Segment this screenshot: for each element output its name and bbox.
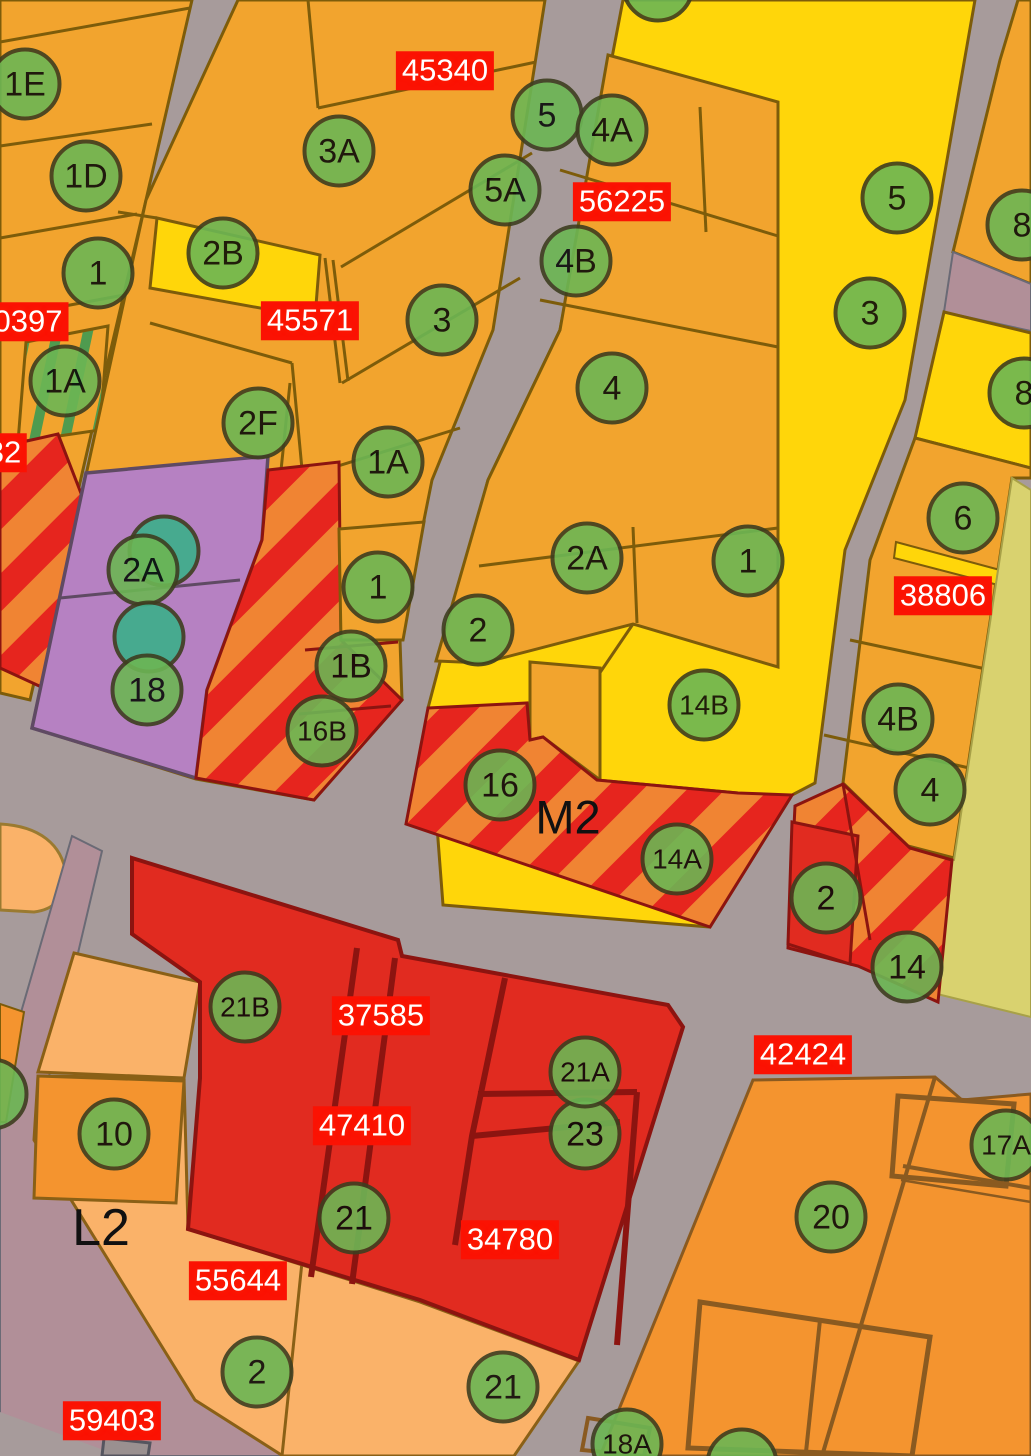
parcel-id-label: 42424 — [754, 1035, 852, 1074]
parcel-id-label: 59403 — [63, 1401, 161, 1440]
parcel-marker-label: 5 — [888, 181, 907, 215]
parcel-marker-label: 2B — [202, 236, 244, 270]
parcel-marker-label: 16 — [481, 768, 519, 802]
parcel-id-label: 55644 — [189, 1261, 287, 1300]
parcel-marker-label: 21B — [220, 993, 270, 1021]
parcel-marker[interactable]: 2A — [551, 522, 624, 595]
parcel-marker[interactable]: 21 — [318, 1182, 391, 1255]
parcel-marker[interactable]: 21A — [549, 1036, 622, 1109]
parcel-marker[interactable]: 21 — [467, 1351, 540, 1424]
parcel-marker-label: 2 — [248, 1355, 267, 1389]
parcel-marker-label: 1A — [367, 445, 409, 479]
parcel-marker[interactable]: 3 — [834, 277, 907, 350]
parcel-marker[interactable]: 2A — [107, 534, 180, 607]
parcel-marker-label: 1A — [44, 364, 86, 398]
parcel-marker-label: 23 — [566, 1117, 604, 1151]
parcel-marker[interactable]: 1D — [50, 140, 123, 213]
parcel-id-label: 45340 — [396, 51, 494, 90]
parcel-marker[interactable]: 4B — [862, 683, 935, 756]
parcel-marker[interactable]: 16 — [464, 749, 537, 822]
parcel-marker[interactable]: 4A — [576, 94, 649, 167]
parcel-id-label: 32 — [0, 433, 27, 472]
parcel-marker[interactable]: 4 — [576, 352, 649, 425]
parcel-marker[interactable]: 1A — [29, 345, 102, 418]
parcel-marker[interactable]: 6 — [927, 482, 1000, 555]
parcel-marker-label: 4B — [877, 702, 919, 736]
parcel-marker-label: 2A — [122, 553, 164, 587]
zone-label: M2 — [535, 794, 600, 841]
parcel-marker-label: 4 — [921, 773, 940, 807]
parcel-marker-label: 18A — [602, 1430, 652, 1456]
parcel-marker-label: 21 — [335, 1201, 373, 1235]
parcel-marker-label: 14A — [652, 845, 702, 873]
parcel-marker[interactable]: 1 — [62, 237, 135, 310]
parcel-marker-label: 1E — [4, 67, 46, 101]
parcel-marker[interactable]: 16B — [286, 695, 359, 768]
map-viewport[interactable]: M2L21E1D11A54A5A4B3A2B34538862F1A2A1811B… — [0, 0, 1031, 1456]
parcel-marker-label: 6 — [954, 501, 973, 535]
parcel-id-label: 45571 — [261, 301, 359, 340]
parcel-marker[interactable]: 2F — [222, 387, 295, 460]
zone-label: L2 — [72, 1202, 130, 1254]
parcel-marker-label: 10 — [95, 1117, 133, 1151]
parcel-marker[interactable]: 2 — [442, 594, 515, 667]
parcel-marker[interactable]: 14B — [668, 669, 741, 742]
parcel-marker-label: 1 — [739, 544, 758, 578]
parcel-marker-label: 14B — [679, 691, 729, 719]
parcel-marker-label: 3 — [433, 303, 452, 337]
parcel-marker-label: 21 — [484, 1370, 522, 1404]
parcel-marker[interactable]: 10 — [78, 1098, 151, 1171]
parcel-marker[interactable]: 5A — [469, 154, 542, 227]
parcel-id-label: 37585 — [332, 996, 430, 1035]
parcel-marker-label: 1 — [89, 256, 108, 290]
parcel-marker-label: 17A — [981, 1131, 1031, 1159]
parcel-marker-label: 14 — [888, 950, 926, 984]
parcel-marker-label: 20 — [812, 1200, 850, 1234]
parcel-marker-label: 1D — [64, 159, 107, 193]
parcel-id-label: 38806 — [894, 576, 992, 615]
parcel-marker-label: 18 — [128, 673, 166, 707]
parcel-marker-label: 2 — [817, 881, 836, 915]
parcel-marker[interactable]: 21B — [209, 971, 282, 1044]
parcel-marker-label: 1B — [330, 649, 372, 683]
parcel-marker[interactable]: 1 — [712, 525, 785, 598]
parcel-marker[interactable]: 14A — [641, 823, 714, 896]
parcel-marker-label: 4A — [591, 113, 633, 147]
parcel-marker-label: 2 — [469, 613, 488, 647]
parcel-marker-label: 4 — [603, 371, 622, 405]
parcel-marker[interactable]: 18 — [111, 654, 184, 727]
parcel-marker-label: 16B — [297, 717, 347, 745]
parcel-marker[interactable]: 20 — [795, 1181, 868, 1254]
parcel-marker[interactable]: 2 — [790, 862, 863, 935]
parcel-marker[interactable]: 4 — [894, 754, 967, 827]
parcel-marker[interactable]: 5 — [511, 79, 584, 152]
parcel-marker[interactable]: 1 — [342, 551, 415, 624]
parcel-marker-label: 2F — [238, 406, 278, 440]
parcel-marker[interactable]: 2B — [187, 217, 260, 290]
parcel-marker-label: 21A — [560, 1058, 610, 1086]
parcel-marker[interactable]: 4B — [540, 225, 613, 298]
parcel-marker-label: 5 — [538, 98, 557, 132]
parcel-marker-label: 8 — [1013, 208, 1031, 242]
parcel-marker[interactable]: 3A — [303, 115, 376, 188]
parcel-marker-label: 3 — [0, 1077, 1, 1111]
parcel-marker-label: 2A — [566, 541, 608, 575]
parcel-id-label: 56225 — [573, 182, 671, 221]
parcel-marker-label: 3 — [861, 296, 880, 330]
parcel-id-label: 47410 — [313, 1106, 411, 1145]
parcel-id-label: 0397 — [0, 302, 68, 341]
parcel-marker-label: 1 — [369, 570, 388, 604]
parcel-marker[interactable]: 1B — [315, 630, 388, 703]
parcel-marker[interactable]: 2 — [221, 1336, 294, 1409]
parcel-marker-label: 8 — [1015, 376, 1031, 410]
parcel-marker[interactable]: 3 — [406, 284, 479, 357]
parcel-marker[interactable]: 14 — [871, 931, 944, 1004]
parcel-id-label: 34780 — [461, 1220, 559, 1259]
parcel-marker-label: 3A — [318, 134, 360, 168]
parcel-marker[interactable]: 1A — [352, 426, 425, 499]
parcel-marker-label: 5A — [484, 173, 526, 207]
parcel-marker[interactable]: 5 — [861, 162, 934, 235]
parcel-marker-label: 4B — [555, 244, 597, 278]
